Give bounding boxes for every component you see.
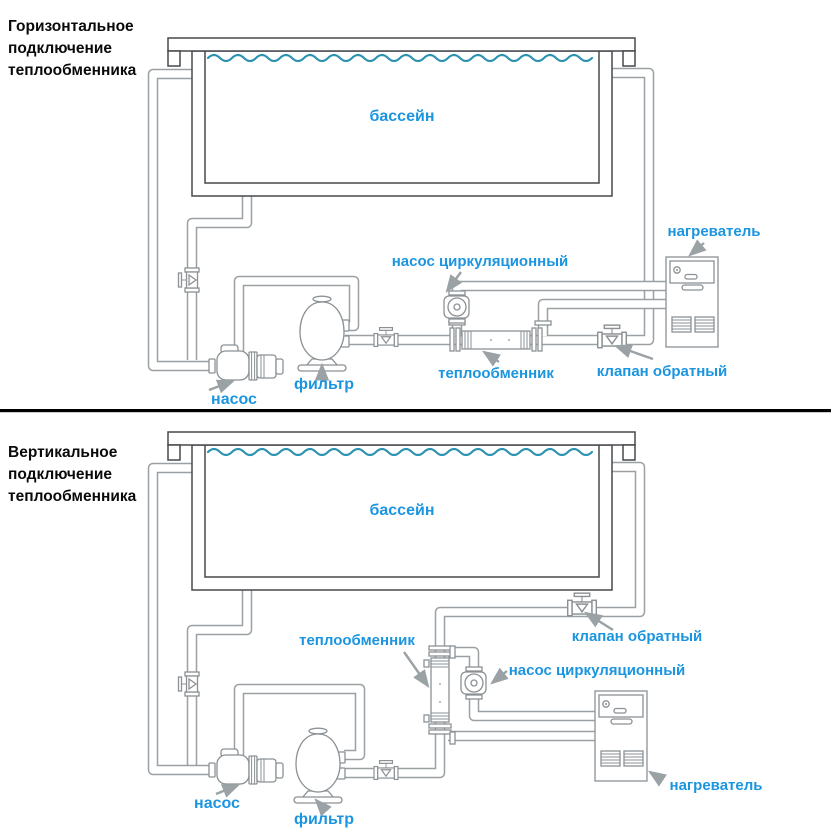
pool: бассейн — [168, 432, 635, 590]
pump — [209, 345, 283, 380]
title-line-1: Вертикальное — [8, 444, 118, 461]
filter — [294, 728, 345, 803]
diagram-title: Горизонтальное подключение теплообменник… — [8, 18, 137, 79]
diagram-title: Вертикальное подключение теплообменника — [8, 444, 137, 505]
heater-label: нагреватель — [670, 777, 763, 794]
title-line-1: Горизонтальное — [8, 18, 134, 35]
check-valve-label: клапан обратный — [597, 363, 728, 380]
check-valve-label: клапан обратный — [572, 628, 703, 645]
pool-label: бассейн — [370, 108, 435, 125]
pump-label: насос — [194, 795, 240, 812]
heat-exchanger-arrow — [404, 652, 428, 686]
heat-exchanger-label: теплообменник — [438, 365, 554, 382]
drain-valve — [179, 268, 200, 292]
title-line-2: подключение — [8, 40, 112, 57]
heater-arrow — [690, 243, 704, 255]
heater — [595, 691, 647, 781]
circulation-pump-arrow — [492, 671, 507, 683]
pump — [209, 749, 283, 784]
drain-valve — [179, 672, 200, 696]
pump-arrow — [209, 381, 233, 390]
heater-label: нагреватель — [668, 223, 761, 240]
vertical-connection-diagram: Вертикальное подключение теплообменника … — [8, 432, 762, 828]
heat-exchanger-arrow — [484, 352, 499, 362]
heater — [666, 257, 718, 347]
filter-label: фильтр — [294, 376, 354, 393]
circulation-pump — [461, 667, 486, 699]
heat-exchanger-label: теплообменник — [299, 632, 415, 649]
title-line-3: теплообменника — [8, 488, 137, 505]
circulation-pump-label: насос циркуляционный — [509, 662, 686, 679]
pump-arrow — [216, 785, 238, 794]
section-divider — [0, 409, 831, 412]
heater-arrow — [650, 772, 662, 780]
circulation-pump-label: насос циркуляционный — [392, 253, 569, 270]
filter-label: фильтр — [294, 811, 354, 828]
filter-outlet-valve — [374, 328, 398, 347]
horizontal-connection-diagram: Горизонтальное подключение теплообменник… — [8, 18, 760, 408]
schematic-page: Горизонтальное подключение теплообменник… — [0, 0, 831, 831]
pool-label: бассейн — [370, 502, 435, 519]
diagram-canvas: Горизонтальное подключение теплообменник… — [0, 0, 831, 831]
filter-outlet-valve — [374, 761, 398, 780]
check-valve-arrow — [616, 346, 653, 359]
circulation-pump — [444, 291, 469, 323]
check-valve — [598, 325, 627, 348]
pool: бассейн — [168, 38, 635, 196]
filter — [298, 296, 349, 371]
title-line-2: подключение — [8, 466, 112, 483]
heat-exchanger — [449, 321, 551, 351]
check-valve — [568, 593, 597, 616]
title-line-3: теплообменника — [8, 62, 137, 79]
pump-label: насос — [211, 391, 257, 408]
heater-supply-pipe — [457, 286, 670, 336]
